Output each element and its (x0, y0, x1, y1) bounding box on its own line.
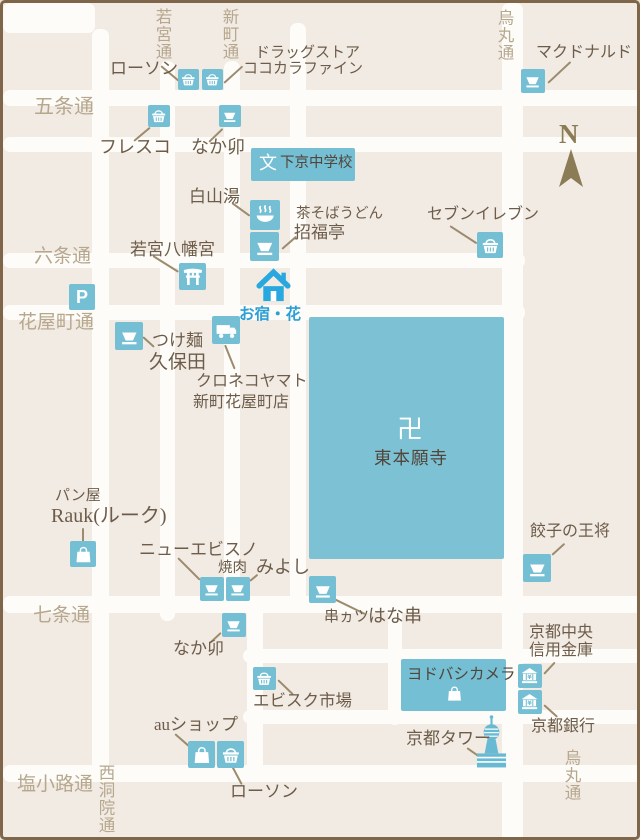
cup-icon (523, 554, 551, 582)
poi-label-kyoto-chuo-line1: 京都中央 (529, 624, 593, 642)
manji-symbol: 卍 (397, 417, 423, 443)
poi-label-panya: パン屋 (55, 488, 101, 505)
cup-icon (219, 105, 241, 127)
poi-label-au-shop: auショップ (154, 715, 238, 735)
poi-label-shofukutei-line2: 招福亭 (294, 223, 345, 243)
street-label-rokujo: 六条通 (34, 246, 91, 268)
poi-label-ebisuku: エビスク市場 (253, 692, 352, 711)
basket-icon (253, 667, 276, 690)
parking-symbol: P (76, 287, 88, 308)
basket-icon (217, 741, 244, 768)
cup-icon (115, 322, 143, 350)
parking-icon: P (69, 284, 95, 310)
torii-icon (179, 263, 206, 290)
north-arrow-icon (556, 149, 586, 189)
street-label-nishinotoin: 西洞院通 (95, 764, 114, 834)
road-gojo (3, 90, 640, 106)
road-stub-top-left (3, 3, 95, 33)
poi-label-yakiniku: 焼肉 (218, 560, 247, 577)
connector (449, 225, 477, 244)
basket-icon (477, 232, 503, 258)
poi-label-miyoshi: みよし (256, 557, 310, 578)
poi-label-lawson-south: ローソン (230, 782, 298, 802)
street-label-shichijo: 七条通 (33, 605, 90, 627)
poi-label-kubota: 久保田 (149, 352, 206, 374)
poi-label-new-ebisuno: ニューエビスノ (139, 540, 258, 560)
connector (547, 61, 571, 84)
bag-icon (70, 541, 96, 567)
poi-label-kyoto-bank: 京都銀行 (531, 718, 595, 736)
street-label-karasuma-bottom: 烏丸通 (561, 749, 580, 802)
bank-icon (518, 690, 542, 714)
poi-label-hakusanyu: 白山湯 (189, 187, 240, 207)
poi-label-fresco: フレスコ (99, 137, 171, 158)
poi-label-kyoto-tower: 京都タワー (406, 729, 491, 749)
connector (177, 557, 200, 580)
poi-label-kyoto-chuo-line2: 信用金庫 (529, 642, 593, 660)
truck-icon (212, 316, 240, 344)
tourist-map: ¥ (0, 0, 640, 840)
connector (543, 662, 555, 675)
poi-label-mcdonalds: マクドナルド (536, 44, 632, 62)
bank-icon (518, 664, 542, 688)
poi-label-gyoza-ohsho: 餃子の王将 (530, 523, 610, 541)
cup-icon (222, 613, 246, 637)
street-label-gojo: 五条通 (34, 96, 94, 119)
poi-label-nakau-north: なか卯 (191, 137, 245, 158)
street-label-wakamiya: 若宮通 (152, 8, 171, 61)
higashi-honganji-label: 東本願寺 (374, 448, 448, 468)
school-symbol: 文 (259, 154, 277, 172)
basket-icon (148, 105, 170, 127)
poi-label-kushikatsu: 串ヵツ (324, 609, 369, 626)
poi-label-tsukemen: つけ麺 (152, 331, 203, 351)
bag-icon (188, 741, 215, 768)
poi-label-lawson-top: ローソン (110, 59, 178, 79)
street-label-karasuma-top: 烏丸通 (494, 9, 513, 62)
poi-label-cocokara-line1: ドラッグストア (255, 45, 360, 62)
poi-label-shofukutei-line1: 茶そばうどん (296, 206, 383, 223)
school-label: 下京中学校 (280, 155, 353, 172)
cup-icon (309, 576, 336, 603)
poi-label-wakamiya-hachimangu: 若宮八幡宮 (130, 240, 215, 260)
house-icon (253, 266, 294, 305)
poi-label-hanakushi: はな串 (368, 606, 422, 627)
poi-label-rauk: Rauk(ルーク) (51, 505, 167, 528)
cup-icon (200, 577, 224, 601)
poi-label-nakau-south: なか卯 (173, 639, 224, 659)
poi-label-kuroneko-line1: クロネコヤマト (196, 373, 308, 391)
onsen-icon (250, 200, 280, 230)
yodobashi-label: ヨドバシカメラ (407, 666, 516, 684)
basket-icon (178, 69, 199, 90)
cup-icon (250, 232, 279, 261)
connector (551, 543, 565, 556)
basket-icon (202, 69, 223, 90)
poi-label-oyado-hana: お宿・花 (239, 306, 301, 324)
poi-label-kuroneko-line2: 新町花屋町店 (193, 394, 289, 412)
compass-north-label: N (559, 119, 579, 150)
cup-icon (226, 577, 250, 601)
street-label-shiokoji: 塩小路通 (17, 774, 93, 796)
poi-label-seven-eleven: セブンイレブン (427, 206, 539, 224)
cup-icon (521, 69, 545, 93)
street-label-shinmachi: 新町通 (219, 8, 238, 61)
yodobashi-bag-icon (444, 683, 465, 704)
poi-label-cocokara-line2: ココカラファイン (243, 61, 363, 78)
street-label-hanayacho: 花屋町通 (18, 312, 94, 334)
connector (82, 528, 84, 542)
